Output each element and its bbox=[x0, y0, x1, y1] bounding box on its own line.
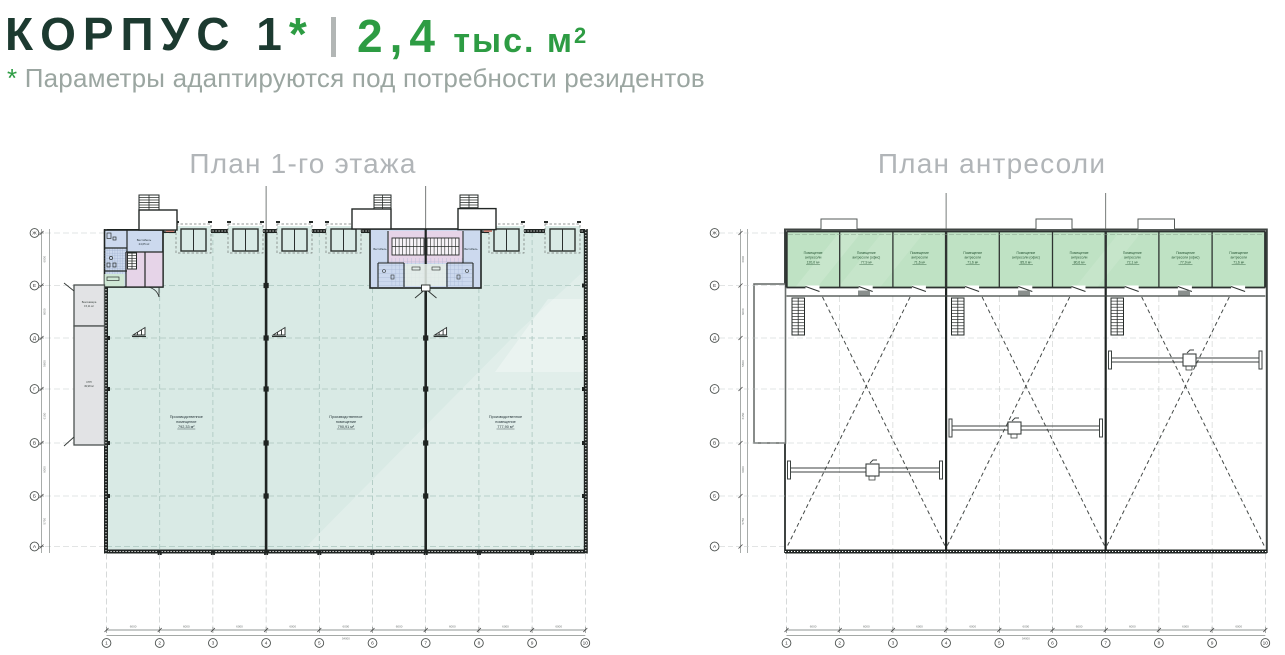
svg-text:6000: 6000 bbox=[502, 625, 509, 629]
svg-text:10: 10 bbox=[583, 641, 589, 647]
svg-text:Венткамера: Венткамера bbox=[82, 300, 97, 304]
svg-text:6: 6 bbox=[1051, 641, 1054, 647]
svg-text:антресоли: антресоли bbox=[1230, 256, 1247, 260]
svg-text:6000: 6000 bbox=[43, 308, 47, 315]
svg-text:777,90 м²: 777,90 м² bbox=[497, 425, 514, 429]
svg-text:6000: 6000 bbox=[916, 625, 923, 629]
svg-text:Г: Г bbox=[33, 387, 36, 393]
svg-text:Помещение: Помещение bbox=[1070, 251, 1089, 255]
svg-text:1: 1 bbox=[105, 641, 108, 647]
svg-text:6000: 6000 bbox=[741, 256, 745, 263]
svg-text:антресоли: антресоли bbox=[1124, 256, 1141, 260]
svg-text:Ж: Ж bbox=[32, 231, 37, 237]
svg-text:54000: 54000 bbox=[342, 637, 350, 641]
svg-text:Производственное: Производственное bbox=[329, 415, 362, 419]
svg-text:6000: 6000 bbox=[289, 625, 296, 629]
svg-text:6: 6 bbox=[371, 641, 374, 647]
svg-text:Б: Б bbox=[33, 494, 36, 500]
svg-text:Вестибюль: Вестибюль bbox=[464, 247, 478, 251]
svg-text:В: В bbox=[713, 441, 716, 447]
svg-text:КПП: КПП bbox=[86, 380, 91, 384]
svg-text:2: 2 bbox=[158, 641, 161, 647]
svg-text:77,9 м²: 77,9 м² bbox=[861, 261, 873, 265]
svg-text:6150: 6150 bbox=[43, 412, 47, 419]
svg-text:72,1 м²: 72,1 м² bbox=[1127, 261, 1139, 265]
svg-text:антресоли (офис): антресоли (офис) bbox=[852, 256, 880, 260]
svg-text:5800: 5800 bbox=[43, 360, 47, 367]
svg-text:85,0 м²: 85,0 м² bbox=[1020, 261, 1032, 265]
svg-text:помещение: помещение bbox=[336, 420, 356, 424]
svg-text:790,91 м²: 790,91 м² bbox=[338, 425, 355, 429]
svg-text:80,6 м²: 80,6 м² bbox=[1074, 261, 1086, 265]
svg-text:6000: 6000 bbox=[236, 625, 243, 629]
svg-text:Е: Е bbox=[33, 283, 36, 289]
svg-text:5: 5 bbox=[998, 641, 1001, 647]
svg-text:5750: 5750 bbox=[43, 518, 47, 525]
svg-text:1: 1 bbox=[785, 641, 788, 647]
svg-text:7: 7 bbox=[424, 641, 427, 647]
svg-text:антресоли: антресоли bbox=[911, 256, 928, 260]
svg-text:Производственное: Производственное bbox=[170, 415, 203, 419]
svg-text:8: 8 bbox=[478, 641, 481, 647]
svg-text:6000: 6000 bbox=[343, 625, 350, 629]
svg-text:Помещение: Помещение bbox=[1123, 251, 1142, 255]
svg-text:792,33 м²: 792,33 м² bbox=[178, 425, 195, 429]
svg-text:6000: 6000 bbox=[1023, 625, 1030, 629]
svg-text:71,6 м²: 71,6 м² bbox=[967, 261, 979, 265]
svg-text:3: 3 bbox=[212, 641, 215, 647]
svg-text:6000: 6000 bbox=[1182, 625, 1189, 629]
svg-text:5750: 5750 bbox=[741, 518, 745, 525]
svg-text:5: 5 bbox=[318, 641, 321, 647]
svg-text:5800: 5800 bbox=[741, 360, 745, 367]
svg-text:6150: 6150 bbox=[741, 412, 745, 419]
svg-text:помещение: помещение bbox=[176, 420, 196, 424]
svg-text:4: 4 bbox=[265, 641, 268, 647]
svg-text:Е: Е bbox=[713, 283, 716, 289]
svg-text:120,0 м²: 120,0 м² bbox=[807, 261, 821, 265]
svg-text:Помещение: Помещение bbox=[1176, 251, 1195, 255]
svg-text:В: В bbox=[33, 441, 36, 447]
svg-text:6000: 6000 bbox=[1129, 625, 1136, 629]
svg-text:6000: 6000 bbox=[741, 308, 745, 315]
svg-text:6000: 6000 bbox=[183, 625, 190, 629]
svg-text:77,9 м²: 77,9 м² bbox=[1180, 261, 1192, 265]
svg-text:6000: 6000 bbox=[863, 625, 870, 629]
svg-text:15,11 м²: 15,11 м² bbox=[84, 304, 94, 308]
svg-text:71,6 м²: 71,6 м² bbox=[1233, 261, 1245, 265]
svg-text:49,98 м²: 49,98 м² bbox=[84, 384, 94, 388]
svg-text:Г: Г bbox=[713, 387, 716, 393]
svg-text:6000: 6000 bbox=[130, 625, 137, 629]
svg-text:8: 8 bbox=[1158, 641, 1161, 647]
svg-text:3: 3 bbox=[892, 641, 895, 647]
svg-text:антресоли (офис): антресоли (офис) bbox=[1172, 256, 1200, 260]
svg-text:24,65 м²: 24,65 м² bbox=[139, 242, 150, 246]
svg-text:антресоли: антресоли bbox=[805, 256, 822, 260]
svg-text:9: 9 bbox=[1211, 641, 1214, 647]
svg-text:помещение: помещение bbox=[495, 420, 515, 424]
svg-text:Б: Б bbox=[713, 494, 716, 500]
svg-text:9: 9 bbox=[531, 641, 534, 647]
svg-text:6000: 6000 bbox=[449, 625, 456, 629]
svg-text:Производственное: Производственное bbox=[489, 415, 522, 419]
svg-text:6000: 6000 bbox=[396, 625, 403, 629]
svg-text:Помещение: Помещение bbox=[963, 251, 982, 255]
svg-text:антресоли (офис): антресоли (офис) bbox=[1012, 256, 1040, 260]
svg-text:антресоли: антресоли bbox=[964, 256, 981, 260]
svg-text:4: 4 bbox=[945, 641, 948, 647]
svg-text:2: 2 bbox=[838, 641, 841, 647]
svg-text:7: 7 bbox=[1104, 641, 1107, 647]
svg-text:Помещение: Помещение bbox=[804, 251, 823, 255]
svg-text:Помещение: Помещение bbox=[857, 251, 876, 255]
svg-text:6000: 6000 bbox=[43, 466, 47, 473]
svg-text:6000: 6000 bbox=[555, 625, 562, 629]
svg-text:6000: 6000 bbox=[741, 466, 745, 473]
svg-text:6000: 6000 bbox=[1076, 625, 1083, 629]
svg-text:Ж: Ж bbox=[712, 231, 717, 237]
svg-text:6000: 6000 bbox=[1235, 625, 1242, 629]
svg-text:Помещение: Помещение bbox=[1016, 251, 1035, 255]
svg-text:Вестибюль: Вестибюль bbox=[373, 247, 387, 251]
svg-text:6000: 6000 bbox=[43, 256, 47, 263]
svg-text:Помещение: Помещение bbox=[1229, 251, 1248, 255]
svg-text:6000: 6000 bbox=[969, 625, 976, 629]
svg-text:10: 10 bbox=[1263, 641, 1269, 647]
svg-text:71,6 м²: 71,6 м² bbox=[914, 261, 926, 265]
svg-text:6000: 6000 bbox=[810, 625, 817, 629]
svg-text:антресоли: антресоли bbox=[1071, 256, 1088, 260]
svg-text:Помещение: Помещение bbox=[910, 251, 929, 255]
svg-text:54000: 54000 bbox=[1022, 637, 1030, 641]
